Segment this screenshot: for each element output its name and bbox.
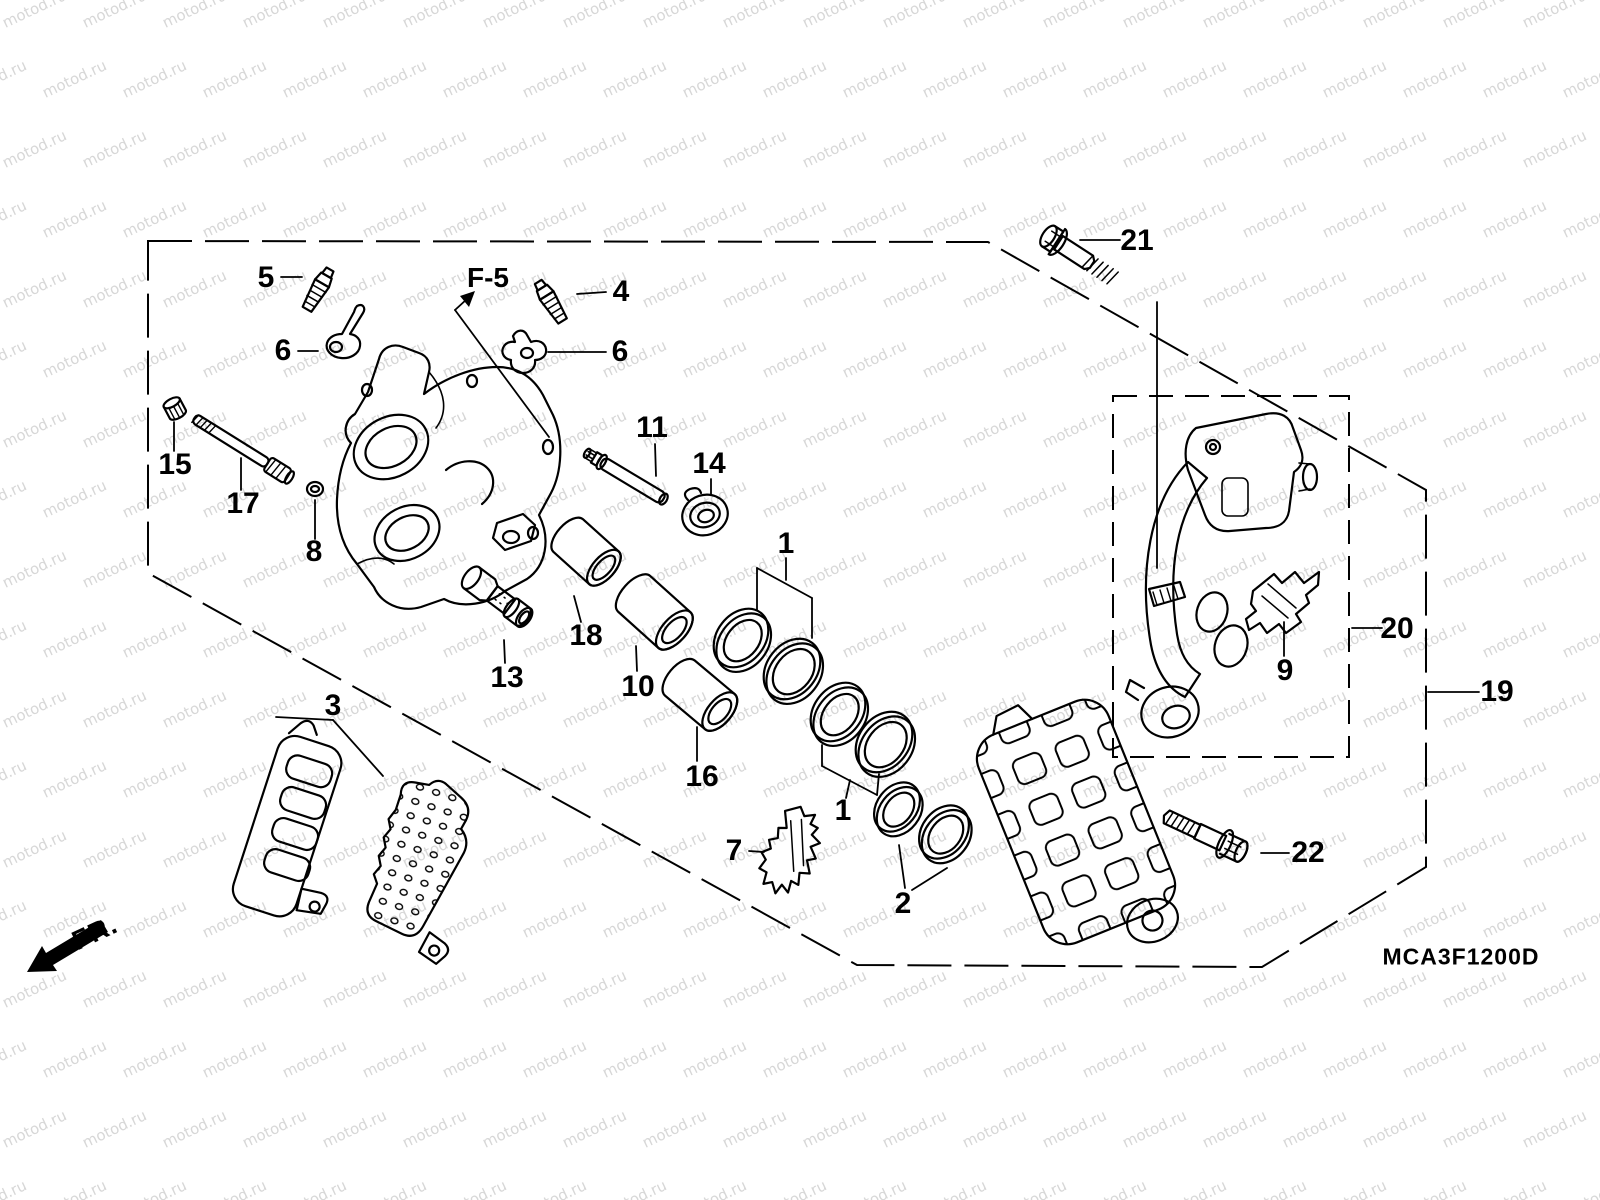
brake-pad-outer	[351, 769, 498, 966]
fr-arrow	[27, 920, 108, 972]
flange-bolt-22	[1158, 802, 1252, 867]
washer-8	[307, 482, 323, 496]
leader-lines	[174, 240, 1479, 890]
piston-10	[609, 568, 699, 656]
clip-6-right	[502, 331, 546, 373]
dust-seal-1d	[843, 701, 928, 788]
f5-arrow-head	[460, 291, 475, 307]
piston-seal-1a	[701, 598, 783, 683]
flange-bolt-21	[1035, 220, 1122, 291]
diagram-line-art	[0, 0, 1600, 1200]
pin-11	[581, 445, 671, 508]
bleed-screw-4	[531, 278, 569, 325]
pad-retainer-9	[1246, 572, 1319, 633]
piston-18	[545, 512, 626, 592]
f5-pointer-line	[455, 310, 549, 437]
caliper-slider-half	[962, 675, 1193, 979]
parts-diagram-canvas: motod.rumotod.rumotod.rumotod.rumotod.ru…	[0, 0, 1600, 1200]
bleed-screw-5	[300, 265, 337, 313]
caliper-body	[337, 346, 560, 609]
piston-16	[656, 653, 744, 737]
clip-6-left	[327, 305, 365, 358]
boot-14	[677, 488, 733, 541]
slide-pin-17	[190, 411, 296, 486]
nut-15	[162, 395, 188, 422]
pad-spring-7	[752, 800, 827, 901]
dust-seal-1b	[751, 628, 836, 715]
